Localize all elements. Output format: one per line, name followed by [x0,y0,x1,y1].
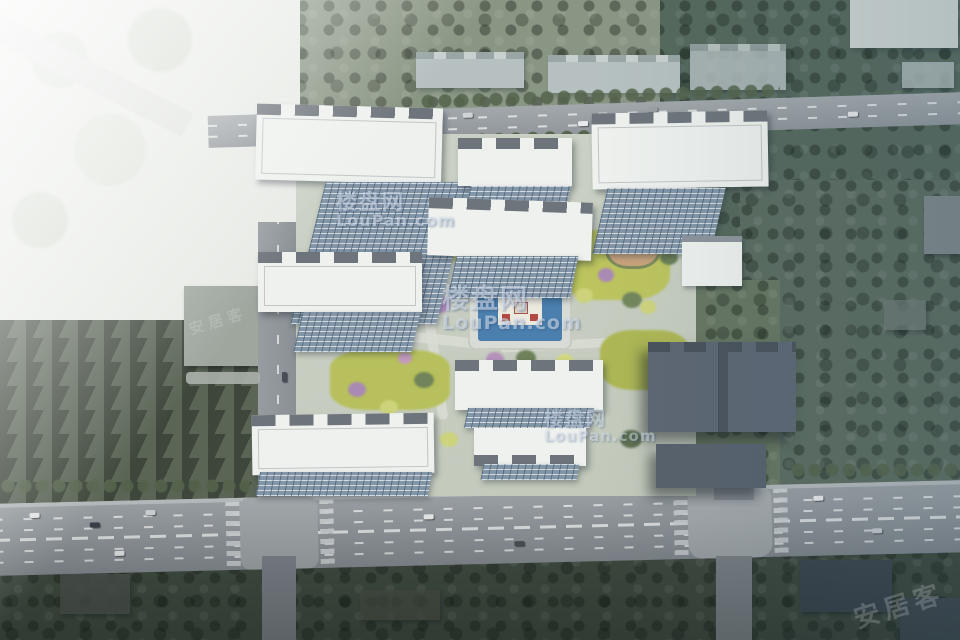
amenity-building [682,236,742,286]
loupan-watermark-cn: 楼盘网 [442,286,582,314]
anjuke-watermark-faint: 安居客 [186,302,250,340]
driveway [186,372,260,384]
tower-southwest [252,413,435,476]
car [648,107,658,112]
car [424,514,434,519]
roof-ridge [264,266,416,306]
car [463,113,473,118]
tower-west [258,252,422,312]
roof-seam [718,342,728,432]
roof-notches [257,104,443,120]
car [848,112,858,117]
car [282,372,287,382]
street-trees [0,478,250,494]
tower-west-facade [293,312,420,352]
tower-north-center [458,138,572,186]
roof-notches [591,110,767,124]
roof-ridge [261,118,436,179]
loupan-watermark: 楼盘网 LouPan.com [336,192,455,230]
car [514,541,524,546]
tree-green [622,292,642,308]
loupan-watermark-en: LouPan.com [336,213,455,229]
context-building [416,52,524,88]
context-building [902,62,954,88]
roof-notches [258,252,422,263]
south-road-branch-west [262,556,296,640]
tower-south-lower-facade [480,464,579,480]
loupan-watermark: 楼盘网 LouPan.com [544,410,656,445]
loupan-watermark-en: LouPan.com [544,429,656,444]
tower-northwest [255,104,443,185]
amenity-roof-edge [682,236,742,242]
roof-notches [455,360,603,371]
roof-notches [458,138,572,149]
context-building [850,0,958,48]
loupan-watermark-cn: 楼盘网 [336,192,455,213]
crosswalk [319,500,335,564]
south-road-branch-east [716,556,752,640]
context-roof [924,196,960,254]
car [578,121,588,126]
dark-roof [360,590,440,620]
roof-ridge [598,125,763,184]
context-building [690,44,786,90]
crosswalk [225,502,241,566]
tree-purple [598,268,614,282]
tower-southwest-facade [256,472,432,496]
car [29,513,39,518]
dark-building-southeast [656,444,766,488]
car [872,528,882,533]
roof-notches [252,413,434,427]
car [114,551,124,556]
crosswalk [673,491,689,555]
tree-yellow [640,300,656,314]
context-building [548,55,680,93]
dark-roof [60,574,130,614]
loupan-watermark: 楼盘网 LouPan.com [442,286,582,333]
loupan-watermark-en: LouPan.com [442,314,582,333]
context-roof-notches [690,44,786,51]
tree-yellow [440,432,458,447]
aerial-rendering: 安居客 [0,0,960,640]
tower-northeast [591,110,768,189]
tree-purple [398,352,412,364]
tree-purple [348,382,366,397]
roof-ridge [258,427,429,469]
car [145,510,155,515]
faded-road-top-left [0,9,193,137]
context-roof-notches [548,55,680,62]
car [813,496,823,501]
street-trees [790,462,960,478]
context-roof [884,300,926,330]
tree-green [414,372,434,388]
tower-south-center [455,360,603,410]
context-roof-notches [416,52,524,59]
sidewalk-edge [0,480,960,508]
car [90,522,100,527]
crosswalk [773,489,789,553]
dark-building-east [648,342,796,432]
